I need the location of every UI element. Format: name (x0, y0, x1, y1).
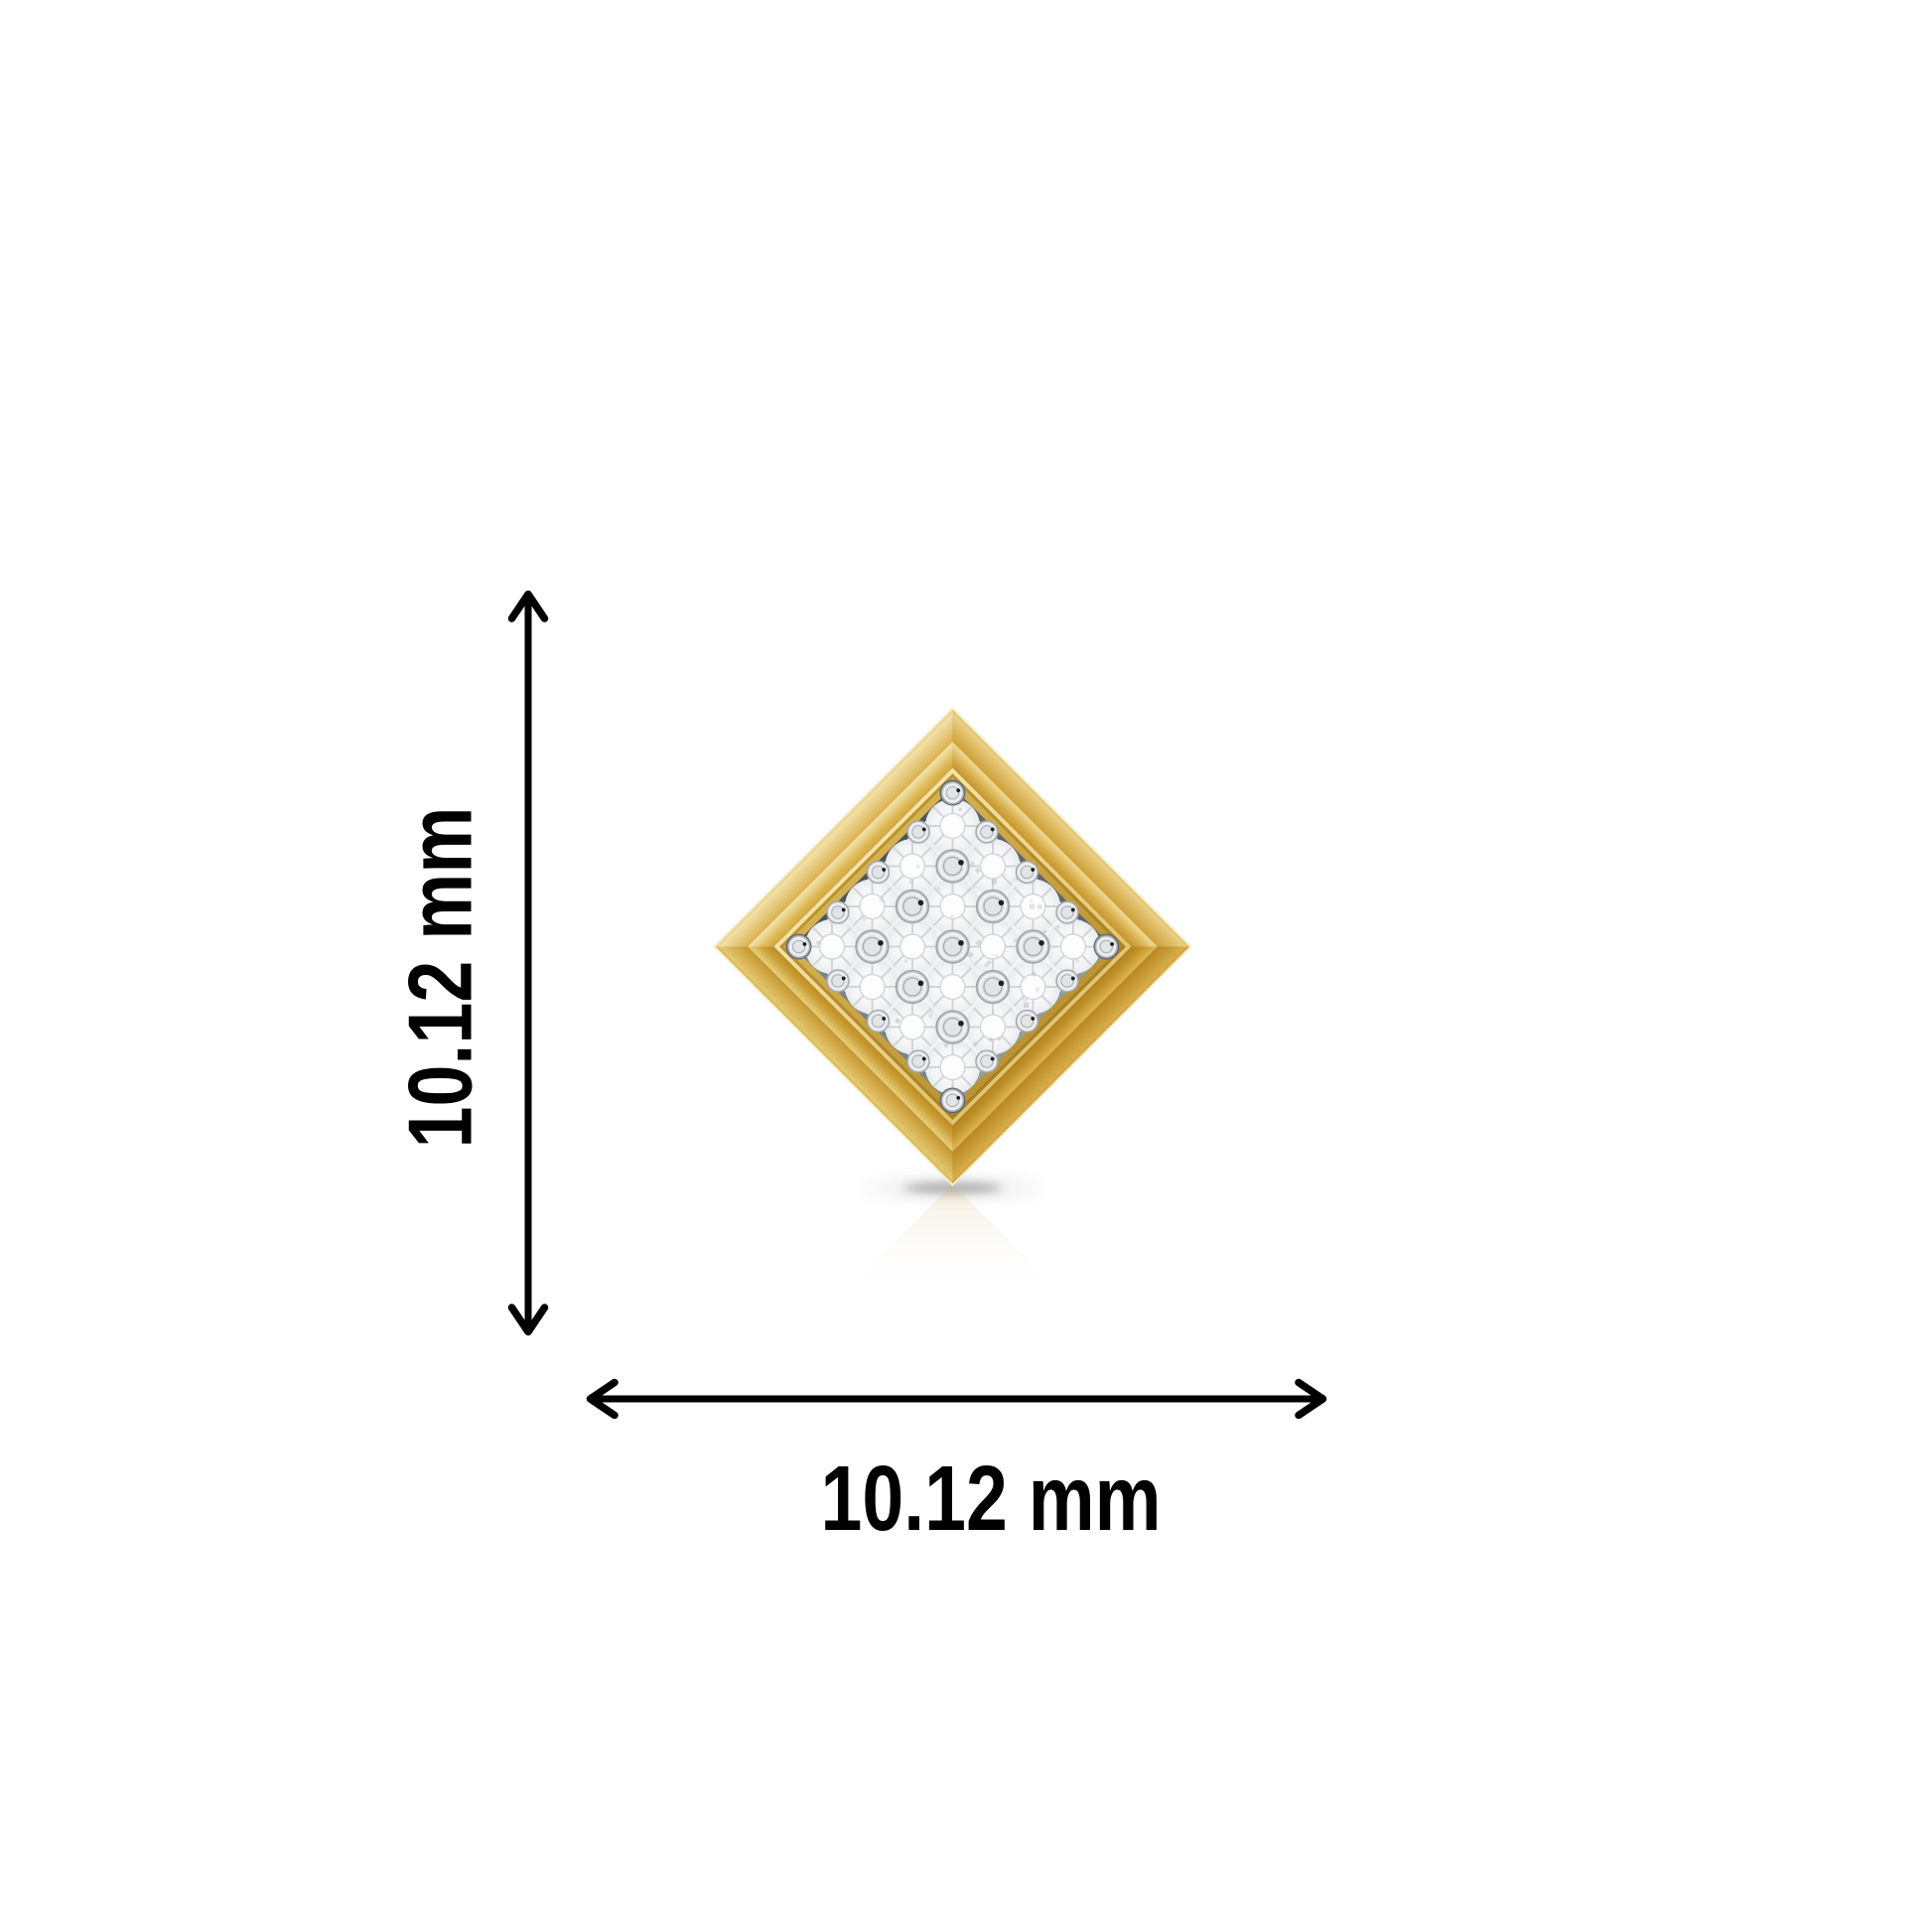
svg-text:10.12 mm: 10.12 mm (821, 1447, 1162, 1550)
svg-text:10.12 mm: 10.12 mm (391, 807, 491, 1149)
